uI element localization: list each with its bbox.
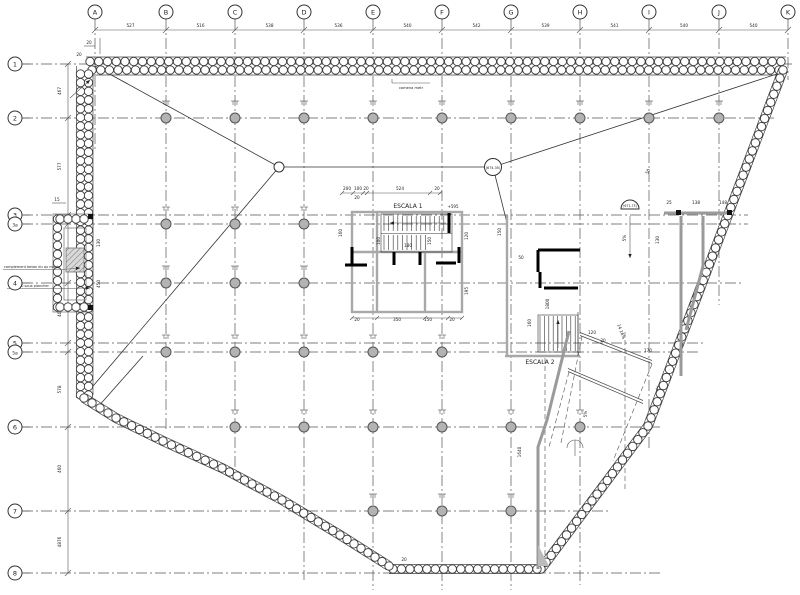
construction-line: [88, 167, 279, 392]
pile-top: [157, 66, 165, 74]
pile-curve: [176, 445, 184, 453]
pile-bottom: [499, 565, 507, 573]
pile-top: [357, 66, 365, 74]
dim-label: 130: [96, 239, 101, 247]
pile-bump: [56, 215, 64, 223]
pile-top: [322, 57, 330, 65]
pile-top: [618, 66, 626, 74]
pile-left: [76, 339, 84, 347]
pile-bump: [64, 303, 72, 311]
pile-top: [123, 66, 131, 74]
pile-right: [668, 357, 676, 365]
pile-top: [96, 66, 104, 74]
pile-top: [462, 66, 470, 74]
pile-left: [76, 365, 84, 373]
pile-top: [103, 57, 111, 65]
dim-label: 5%: [622, 235, 627, 242]
pile-top: [731, 66, 739, 74]
pile-left: [76, 183, 84, 191]
pile-bottom: [414, 565, 422, 573]
dim-label: 25: [666, 200, 672, 205]
pile-top: [401, 66, 409, 74]
dim-label: 150: [427, 237, 432, 245]
grid-bubble-number: 1: [13, 60, 17, 68]
pile-left: [76, 313, 84, 321]
column: [299, 113, 309, 123]
column: [230, 422, 240, 432]
pile-top: [182, 57, 190, 65]
column: [575, 113, 585, 123]
dim-label: 524: [396, 186, 404, 191]
pile-top: [593, 57, 601, 65]
dim-label: 20: [86, 40, 92, 45]
pile-top: [549, 57, 557, 65]
column: [437, 506, 447, 516]
pile-curve: [209, 460, 217, 468]
secant-pile-walls: [53, 57, 787, 574]
pile-left: [84, 131, 92, 139]
pile-right: [717, 228, 725, 236]
dim-label: 130: [655, 236, 660, 244]
column: [161, 347, 171, 357]
pile-top: [742, 57, 750, 65]
column: [299, 278, 309, 288]
pile-left: [76, 139, 84, 147]
pile-left: [84, 70, 92, 78]
pile-top: [514, 57, 522, 65]
pile-left: [84, 373, 92, 381]
grid-bubble-number: 6: [13, 423, 17, 431]
pile-top: [366, 66, 374, 74]
pile-top: [749, 66, 757, 74]
pile-curve: [159, 437, 167, 445]
pile-left: [84, 252, 92, 260]
pile-left: [84, 165, 92, 173]
left-dim-text: 460: [57, 465, 62, 473]
pile-top: [679, 66, 687, 74]
pile-top: [166, 66, 174, 74]
pile-left: [76, 356, 84, 364]
pile-left: [84, 226, 92, 234]
pile-top: [253, 66, 261, 74]
pile-top: [156, 57, 164, 65]
pile-top: [557, 66, 565, 74]
pile-left: [76, 191, 84, 199]
pile-top: [279, 66, 287, 74]
pile-top: [357, 57, 365, 65]
ramp-guide-line: [549, 372, 569, 447]
pile-top: [497, 66, 505, 74]
pile-top: [149, 66, 157, 74]
dim-label: 148: [719, 200, 727, 205]
pile-top: [105, 66, 113, 74]
pile-curve: [151, 433, 159, 441]
dim-label: 170: [644, 348, 652, 353]
pile-left: [84, 174, 92, 182]
pile-right: [662, 373, 670, 381]
grid-bubble-letter: J: [717, 9, 720, 17]
pile-top: [236, 66, 244, 74]
dim-label: 14 16%: [616, 323, 626, 340]
pile-curve: [167, 441, 175, 449]
dim-label: 5%: [583, 411, 588, 418]
pile-bottom: [397, 565, 405, 573]
pile-right: [742, 163, 750, 171]
floor-plan-drawing: 5275165385365405425395415405404675774634…: [0, 0, 800, 595]
dim-label: 120: [464, 232, 469, 240]
pile-right: [647, 414, 655, 422]
pile-top: [409, 57, 417, 65]
pile-left: [76, 96, 84, 104]
pile-top: [436, 66, 444, 74]
pile-top: [234, 57, 242, 65]
column: [161, 113, 171, 123]
pile-left: [84, 382, 92, 390]
pile-left: [84, 148, 92, 156]
wall-end-block: [88, 305, 93, 310]
column: [299, 219, 309, 229]
dim-label: 50: [644, 168, 651, 175]
pile-top: [653, 66, 661, 74]
level-marker-text: (671.73): [623, 204, 637, 208]
construction-line: [95, 66, 279, 167]
pile-left: [76, 70, 84, 78]
pile-top: [670, 66, 678, 74]
wall-edge: [537, 68, 778, 566]
pile-left: [84, 295, 92, 303]
pile-left: [84, 261, 92, 269]
pile-top: [304, 57, 312, 65]
construction-line: [493, 72, 783, 167]
dim-label: 120: [588, 330, 596, 335]
pile-top: [714, 66, 722, 74]
pile-left: [76, 105, 84, 113]
column: [368, 506, 378, 516]
pile-left: [84, 235, 92, 243]
pile-top: [95, 57, 103, 65]
dim-label: 150: [497, 228, 502, 236]
pile-top: [705, 66, 713, 74]
pile-left: [76, 165, 84, 173]
pile-top: [777, 57, 785, 65]
pile-left: [84, 243, 92, 251]
left-dim-text: 578: [57, 385, 62, 393]
column: [368, 113, 378, 123]
pile-top: [601, 66, 609, 74]
pile-top: [602, 57, 610, 65]
pile-right: [721, 220, 729, 228]
grid-bubble-letter: K: [786, 9, 791, 17]
dim-label: 100: [354, 186, 362, 191]
pile-bottom: [440, 565, 448, 573]
pile-top: [766, 66, 774, 74]
pile-top: [751, 57, 759, 65]
dim-label: 20: [76, 52, 82, 57]
pile-top: [531, 66, 539, 74]
column: [230, 113, 240, 123]
pile-right: [748, 147, 756, 155]
pile-top: [401, 57, 409, 65]
column-grid: [161, 101, 724, 516]
pile-curve: [255, 484, 263, 492]
pile-top: [262, 66, 270, 74]
pile-top: [740, 66, 748, 74]
dim-label: 20: [354, 195, 360, 200]
dim-label: 100: [376, 237, 381, 245]
pile-top: [688, 66, 696, 74]
column: [368, 347, 378, 357]
pile-top: [200, 57, 208, 65]
pile-top: [313, 57, 321, 65]
column: [368, 422, 378, 432]
column: [575, 422, 585, 432]
pile-right: [730, 195, 738, 203]
top-dim-text: 540: [750, 23, 758, 28]
wall-end-block: [727, 210, 732, 215]
pile-top: [592, 66, 600, 74]
note1-text: complement beton du au moule: [4, 265, 60, 269]
ramp-beam: [580, 336, 652, 364]
pile-left: [84, 321, 92, 329]
pile-top: [583, 66, 591, 74]
grid-bubble-letter: D: [301, 9, 306, 17]
top-dim-text: 527: [127, 23, 135, 28]
ramp-beam: [568, 372, 643, 404]
pile-top: [637, 57, 645, 65]
pile-right: [763, 106, 771, 114]
pile-top: [270, 66, 278, 74]
column: [230, 347, 240, 357]
column: [714, 113, 724, 123]
dim-label: 450: [96, 280, 101, 288]
grid-lines: 5275165385365405425395415405404675774634…: [22, 19, 792, 590]
pile-bump: [53, 241, 61, 249]
pile-top: [723, 66, 731, 74]
pile-top: [175, 66, 183, 74]
pile-top: [427, 66, 435, 74]
pile-right: [767, 98, 775, 106]
grid-bubble-letter: A: [93, 9, 98, 17]
column: [506, 422, 516, 432]
grid-bubble-letter: G: [508, 9, 513, 17]
pile-left: [84, 200, 92, 208]
floor-plan-page: 5275165385365405425395415405404675774634…: [0, 0, 800, 595]
pile-top: [210, 66, 218, 74]
dim-label: 20: [434, 186, 440, 191]
pile-left: [84, 183, 92, 191]
pile-right: [773, 82, 781, 90]
pile-left: [76, 174, 84, 182]
left-dim-text: 467: [57, 87, 62, 95]
column: [506, 506, 516, 516]
internal-structures: ESCALA 1+595ESCALA 2: [64, 191, 732, 569]
pile-top: [121, 57, 129, 65]
pile-left: [76, 226, 84, 234]
pile-top: [479, 66, 487, 74]
pile-curve: [270, 492, 278, 500]
pile-curve: [225, 468, 233, 476]
top-dim-text: 538: [266, 23, 274, 28]
pile-right: [779, 66, 787, 74]
pile-top: [366, 57, 374, 65]
pile-left: [84, 356, 92, 364]
pile-left: [84, 96, 92, 104]
pile-top: [218, 66, 226, 74]
pile-top: [165, 57, 173, 65]
pile-top: [532, 57, 540, 65]
pile-top: [566, 66, 574, 74]
pile-right: [736, 179, 744, 187]
pile-top: [192, 66, 200, 74]
pile-top: [261, 57, 269, 65]
pile-top: [759, 57, 767, 65]
column: [437, 347, 447, 357]
pile-top: [288, 66, 296, 74]
pile-top: [724, 57, 732, 65]
left-dim-text: 4876: [57, 536, 62, 547]
pile-right: [650, 406, 658, 414]
pile-top: [226, 57, 234, 65]
pile-top: [244, 66, 252, 74]
pile-right: [776, 74, 784, 82]
top-dim-text: 536: [335, 23, 343, 28]
pile-top: [305, 66, 313, 74]
pile-top: [611, 57, 619, 65]
pile-top: [314, 66, 322, 74]
pile-top: [716, 57, 724, 65]
pile-left: [76, 347, 84, 355]
pile-bottom: [406, 565, 414, 573]
pile-top: [662, 66, 670, 74]
pile-left: [84, 269, 92, 277]
grid-bubble-number: 4: [13, 279, 17, 287]
pile-left: [84, 191, 92, 199]
pile-left: [84, 339, 92, 347]
pile-bottom: [524, 565, 532, 573]
pile-right: [711, 244, 719, 252]
pile-right: [653, 398, 661, 406]
pile-bottom: [448, 565, 456, 573]
dim-label: 1640: [517, 446, 522, 457]
level-node-text: (674.35): [486, 166, 501, 170]
pile-top: [131, 66, 139, 74]
pile-top: [173, 57, 181, 65]
pile-top: [768, 57, 776, 65]
pile-top: [541, 57, 549, 65]
pile-right: [757, 122, 765, 130]
pile-right: [665, 365, 673, 373]
pile-top: [331, 66, 339, 74]
pile-top: [444, 57, 452, 65]
wall-end-block: [88, 214, 93, 219]
top-dim-text: 542: [473, 23, 481, 28]
pile-top: [523, 57, 531, 65]
pile-top: [479, 57, 487, 65]
column: [506, 113, 516, 123]
dim-label: 20: [401, 557, 407, 562]
dim-label: 15: [54, 197, 60, 202]
pile-top: [646, 57, 654, 65]
column: [299, 347, 309, 357]
grid-bubble-letter: E: [371, 9, 375, 17]
dim-label: 180: [404, 243, 412, 248]
pile-right: [770, 90, 778, 98]
pile-top: [698, 57, 706, 65]
pile-left: [76, 122, 84, 130]
pile-top: [628, 57, 636, 65]
pile-top: [697, 66, 705, 74]
grid-bubbles: ABCDEFGHIJK1233a455a678: [8, 5, 795, 580]
pile-bump: [64, 215, 72, 223]
pile-top: [644, 66, 652, 74]
pile-left: [76, 330, 84, 338]
left-dim-text: 577: [57, 162, 62, 170]
pile-left: [84, 365, 92, 373]
pile-top: [191, 57, 199, 65]
pile-top: [610, 66, 618, 74]
top-dim-text: 516: [197, 23, 205, 28]
dim-label: 195: [464, 287, 469, 295]
dim-label: 160: [527, 319, 532, 327]
pile-top: [243, 57, 251, 65]
pile-top: [208, 57, 216, 65]
pile-right: [733, 187, 741, 195]
pile-left: [84, 347, 92, 355]
pile-top: [183, 66, 191, 74]
pile-top: [689, 57, 697, 65]
pile-curve: [112, 414, 120, 422]
pile-top: [375, 66, 383, 74]
pile-right: [714, 236, 722, 244]
ramp-beam: [580, 333, 652, 361]
pile-top: [147, 57, 155, 65]
pile-curve: [263, 488, 271, 496]
grid-bubble-number: 7: [13, 507, 17, 515]
pile-left: [84, 122, 92, 130]
pile-top: [497, 57, 505, 65]
pile-right: [760, 114, 768, 122]
pile-top: [584, 57, 592, 65]
pile-top: [471, 57, 479, 65]
pile-right: [671, 349, 679, 357]
pile-top: [757, 66, 765, 74]
pile-top: [488, 57, 496, 65]
pile-top: [138, 57, 146, 65]
setting-out-node: [274, 162, 284, 172]
pile-curve: [135, 425, 143, 433]
pile-top: [453, 66, 461, 74]
pile-bottom: [482, 565, 490, 573]
pile-bump: [56, 303, 64, 311]
dim-label: 200: [343, 186, 351, 191]
pile-curve: [96, 404, 104, 412]
pile-top: [681, 57, 689, 65]
pile-top: [201, 66, 209, 74]
pile-curve: [233, 472, 241, 480]
pile-top: [392, 66, 400, 74]
pile-top: [392, 57, 400, 65]
grid-bubble-letter: B: [164, 9, 168, 17]
pile-left: [76, 235, 84, 243]
pile-curve: [120, 418, 128, 426]
pile-top: [505, 66, 513, 74]
grid-bubble-number: 8: [13, 569, 17, 577]
pile-bottom: [474, 565, 482, 573]
dimension-annotations: 2020152001002052420201601001801501201952…: [3, 38, 727, 562]
column: [161, 278, 171, 288]
pile-top: [707, 57, 715, 65]
pile-left: [76, 148, 84, 156]
